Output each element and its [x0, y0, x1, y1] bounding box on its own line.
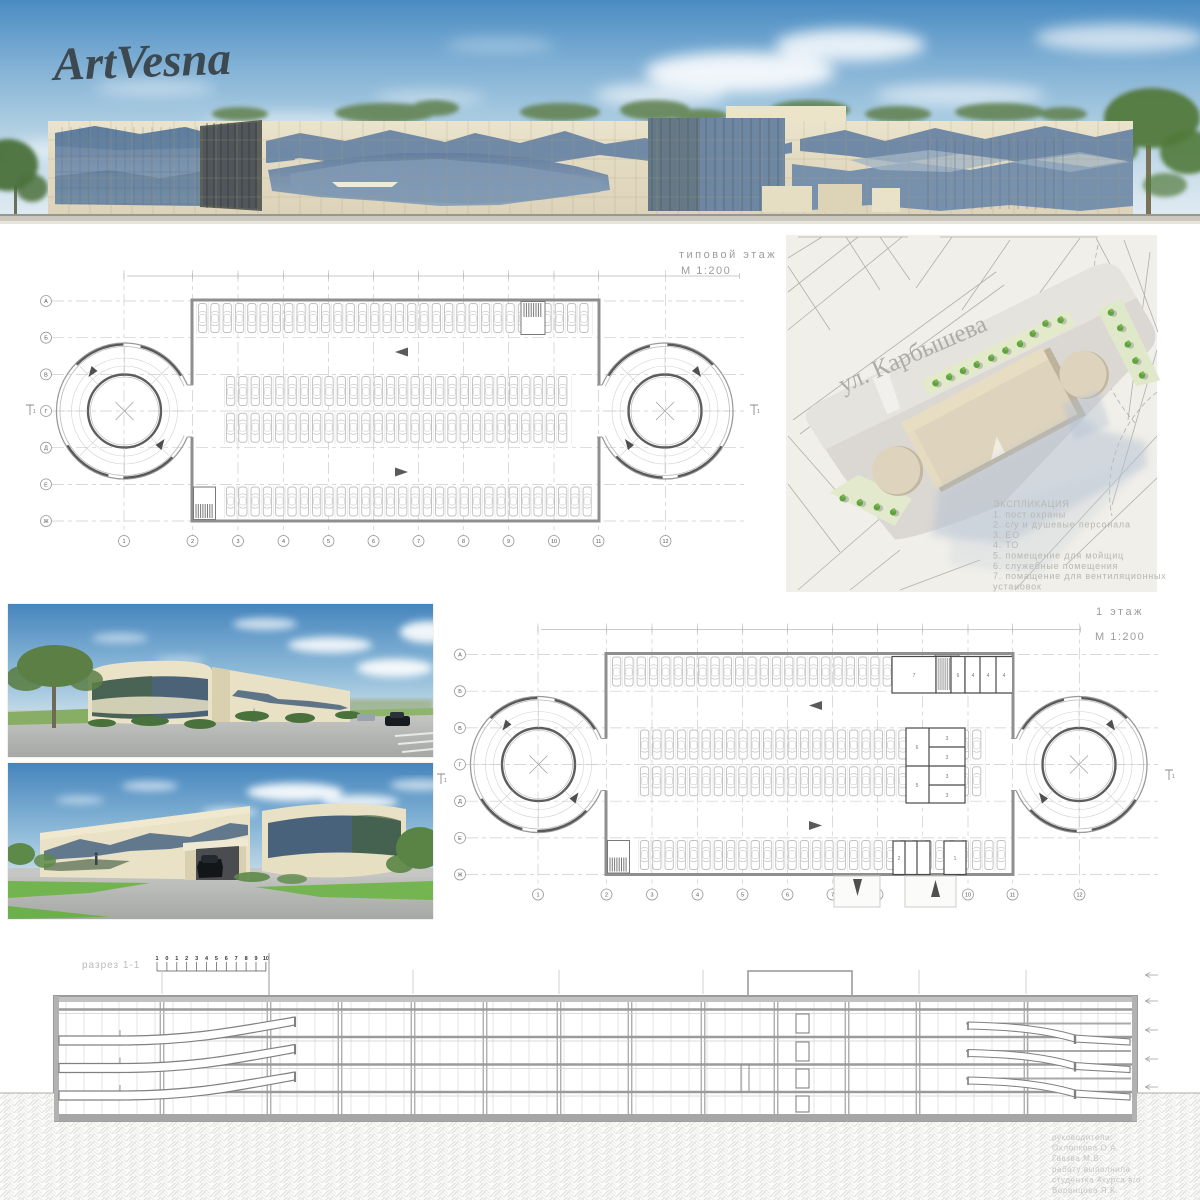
svg-text:10: 10 [551, 539, 557, 545]
svg-text:1: 1 [757, 409, 760, 415]
svg-text:В: В [44, 372, 48, 378]
svg-text:12: 12 [1076, 893, 1082, 899]
svg-text:Ж: Ж [43, 519, 48, 525]
svg-text:3: 3 [946, 774, 949, 780]
svg-text:4: 4 [696, 893, 699, 899]
svg-text:Е: Е [44, 482, 48, 488]
svg-text:2: 2 [185, 956, 188, 962]
svg-text:10: 10 [965, 893, 971, 899]
svg-text:3: 3 [236, 539, 239, 545]
svg-text:1: 1 [175, 956, 178, 962]
svg-text:4. ТО: 4. ТО [993, 540, 1019, 550]
svg-text:руководители:: руководители: [1052, 1133, 1113, 1142]
svg-text:2: 2 [605, 893, 608, 899]
svg-text:1: 1 [444, 778, 447, 784]
svg-text:ЭКСПЛИКАЦИЯ: ЭКСПЛИКАЦИЯ [993, 499, 1070, 509]
svg-text:6: 6 [225, 956, 228, 962]
svg-text:6: 6 [786, 893, 789, 899]
svg-text:2: 2 [898, 856, 901, 862]
svg-text:7: 7 [913, 673, 916, 679]
svg-text:5: 5 [215, 956, 218, 962]
svg-text:3: 3 [195, 956, 198, 962]
svg-text:6: 6 [916, 745, 919, 751]
svg-text:М 1:200: М 1:200 [1095, 631, 1145, 643]
svg-text:Г: Г [459, 763, 462, 769]
svg-text:4: 4 [1003, 673, 1006, 679]
svg-text:В: В [458, 726, 462, 732]
svg-text:установок: установок [993, 581, 1042, 591]
svg-text:0: 0 [165, 956, 168, 962]
svg-text:7. помащение для вентиляционн: 7. помащение для вентиляционных [993, 571, 1167, 581]
svg-text:2. с/у и душевые персонала: 2. с/у и душевые персонала [993, 520, 1131, 530]
svg-text:1 этаж: 1 этаж [1096, 606, 1144, 618]
svg-text:3: 3 [946, 755, 949, 761]
svg-text:6. служебные помещения: 6. служебные помещения [993, 561, 1118, 571]
svg-text:работу выполнила: работу выполнила [1052, 1165, 1131, 1174]
svg-text:1: 1 [1172, 774, 1175, 780]
svg-text:Б: Б [458, 689, 462, 695]
svg-text:3. ЕО: 3. ЕО [993, 530, 1020, 540]
svg-text:12: 12 [662, 539, 668, 545]
svg-text:7: 7 [417, 539, 420, 545]
svg-text:Д: Д [44, 446, 48, 452]
svg-text:А: А [458, 653, 462, 659]
svg-text:11: 11 [1010, 893, 1016, 899]
svg-text:3: 3 [946, 793, 949, 799]
svg-text:4: 4 [987, 673, 990, 679]
svg-text:8: 8 [245, 956, 248, 962]
svg-text:5. помещение для мойщиц: 5. помещение для мойщиц [993, 551, 1124, 561]
svg-text:Ж: Ж [457, 873, 462, 879]
svg-text:9: 9 [254, 956, 257, 962]
svg-text:8: 8 [462, 539, 465, 545]
svg-text:Гавзва М.В.: Гавзва М.В. [1052, 1154, 1102, 1163]
svg-text:А: А [44, 299, 48, 305]
svg-text:М 1:200: М 1:200 [681, 265, 731, 277]
svg-text:Д: Д [458, 799, 462, 805]
svg-text:Охлопкова О.А.: Охлопкова О.А. [1052, 1144, 1119, 1153]
svg-text:5: 5 [741, 893, 744, 899]
svg-text:1. пост охраны: 1. пост охраны [993, 509, 1066, 519]
svg-text:Б: Б [44, 336, 48, 342]
svg-text:9: 9 [507, 539, 510, 545]
svg-text:студентка 4курса в/о: студентка 4курса в/о [1052, 1175, 1141, 1184]
svg-text:3: 3 [946, 736, 949, 742]
svg-text:4: 4 [972, 673, 975, 679]
svg-text:Г: Г [45, 409, 48, 415]
svg-text:2: 2 [191, 539, 194, 545]
svg-text:10: 10 [263, 956, 269, 962]
svg-text:6: 6 [372, 539, 375, 545]
svg-text:ArtVesna: ArtVesna [50, 33, 232, 91]
svg-text:3: 3 [650, 893, 653, 899]
svg-text:6: 6 [957, 673, 960, 679]
svg-text:1: 1 [122, 539, 125, 545]
svg-text:4: 4 [282, 539, 285, 545]
svg-text:11: 11 [596, 539, 602, 545]
svg-text:Е: Е [458, 836, 462, 842]
svg-text:4: 4 [205, 956, 209, 962]
svg-text:типовой этаж: типовой этаж [679, 249, 777, 261]
svg-text:5: 5 [916, 783, 919, 789]
svg-text:1: 1 [536, 893, 539, 899]
svg-text:1: 1 [33, 409, 36, 415]
svg-text:разрез 1-1: разрез 1-1 [82, 960, 140, 971]
svg-text:7: 7 [235, 956, 238, 962]
svg-text:1: 1 [155, 956, 158, 962]
svg-text:Воронцова Я.К.: Воронцова Я.К. [1052, 1186, 1118, 1195]
svg-text:5: 5 [327, 539, 330, 545]
svg-text:1: 1 [954, 856, 957, 862]
